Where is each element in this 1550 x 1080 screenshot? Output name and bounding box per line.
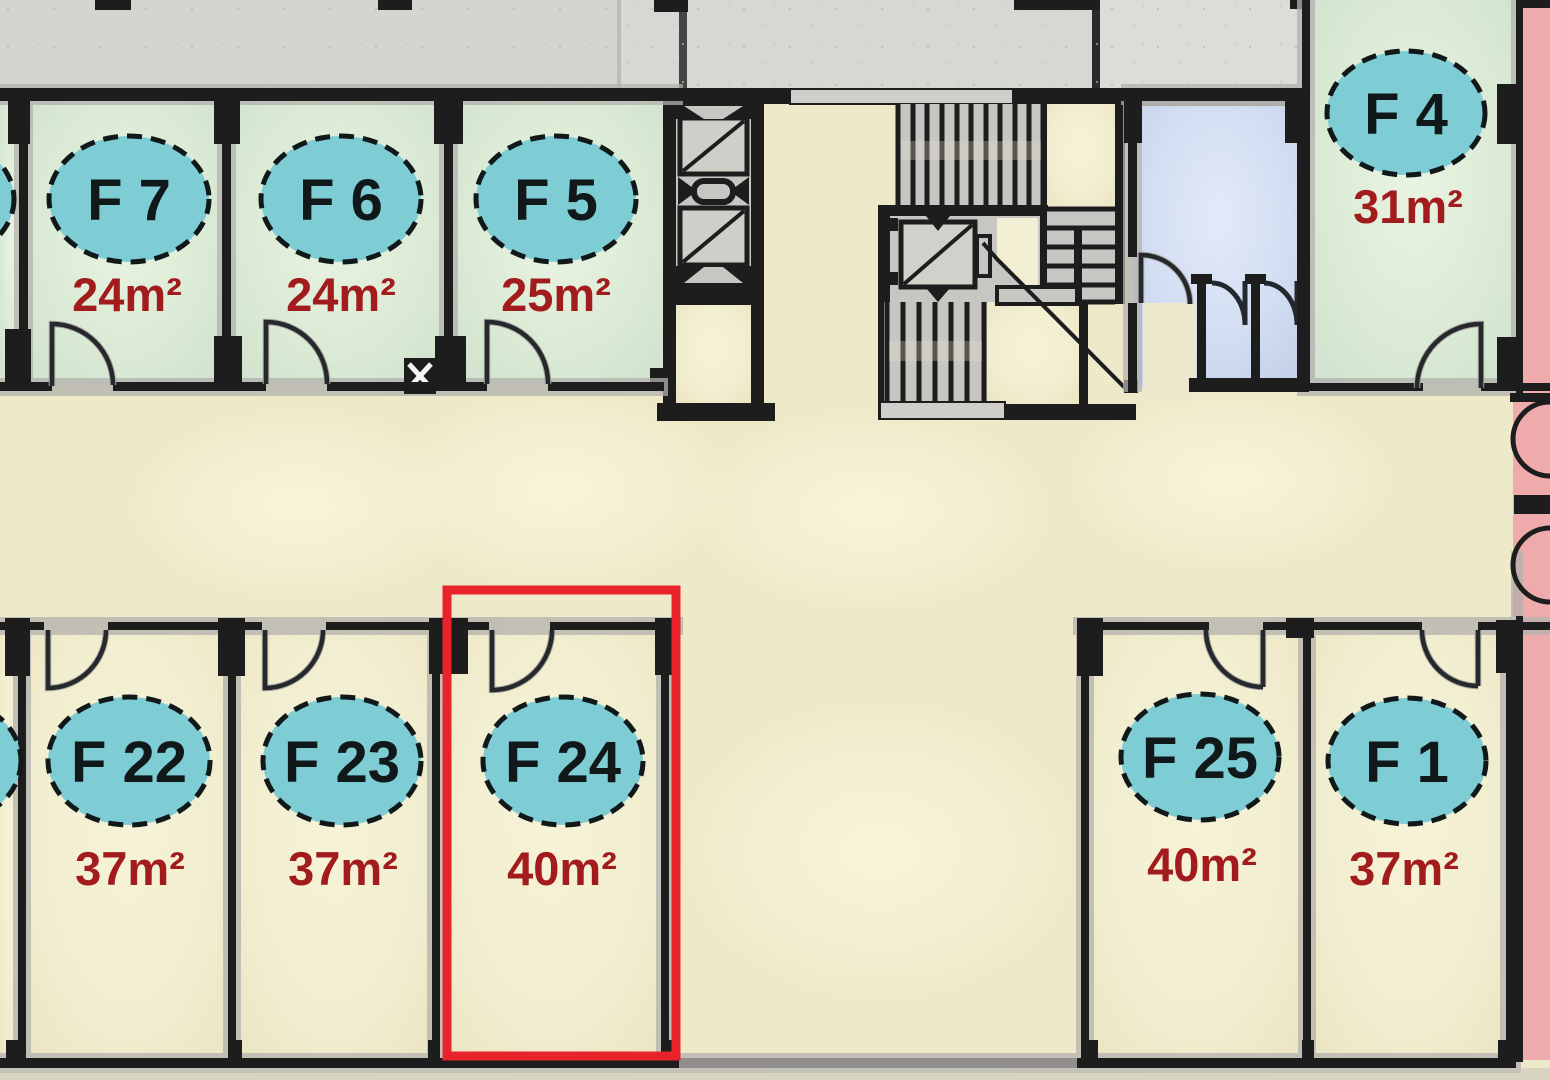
svg-text:24m²: 24m²	[286, 268, 396, 321]
svg-text:40m²: 40m²	[1147, 838, 1257, 891]
svg-text:F 24: F 24	[505, 730, 621, 795]
svg-text:F 23: F 23	[284, 730, 400, 795]
svg-text:F 1: F 1	[1365, 730, 1449, 795]
svg-text:F 4: F 4	[1364, 82, 1448, 147]
svg-text:24m²: 24m²	[72, 268, 182, 321]
svg-text:F 22: F 22	[71, 730, 187, 795]
svg-text:F 7: F 7	[87, 168, 171, 233]
svg-text:31m²: 31m²	[1353, 180, 1463, 233]
svg-text:37m²: 37m²	[288, 842, 398, 895]
svg-text:25m²: 25m²	[501, 268, 611, 321]
svg-text:F 6: F 6	[299, 168, 383, 233]
svg-text:F 5: F 5	[514, 168, 598, 233]
svg-text:37m²: 37m²	[1349, 842, 1459, 895]
svg-text:F 25: F 25	[1142, 726, 1258, 791]
svg-text:40m²: 40m²	[507, 842, 617, 895]
svg-text:37m²: 37m²	[75, 842, 185, 895]
